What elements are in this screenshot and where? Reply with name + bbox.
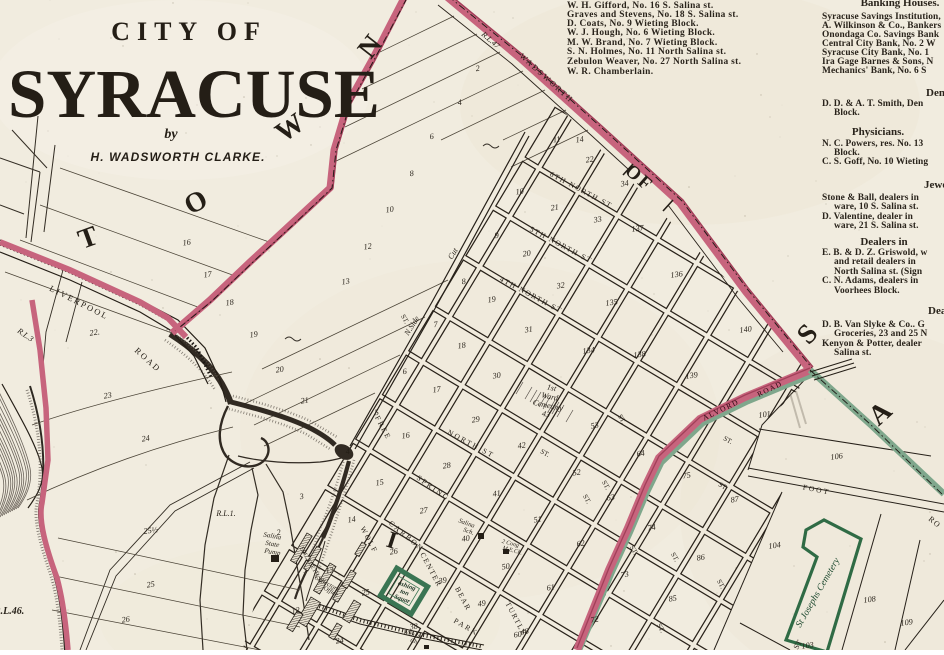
svg-text:85: 85 <box>668 593 677 603</box>
svg-text:108: 108 <box>863 594 876 605</box>
svg-text:19: 19 <box>249 329 258 339</box>
svg-text:Dealers in: Dealers in <box>928 305 944 317</box>
svg-text:13: 13 <box>341 276 350 286</box>
svg-text:Zebulon Weaver, No. 27 North S: Zebulon Weaver, No. 27 North Salina st. <box>567 57 741 67</box>
svg-text:25: 25 <box>146 579 155 589</box>
svg-text:Dealers in: Dealers in <box>860 236 907 248</box>
svg-text:29: 29 <box>471 414 480 424</box>
svg-text:22.: 22. <box>89 327 100 337</box>
svg-text:52: 52 <box>572 467 581 477</box>
svg-text:S. N. Holmes, No. 11 North Sal: S. N. Holmes, No. 11 North Salina st. <box>567 47 726 57</box>
svg-text:136: 136 <box>670 269 684 280</box>
svg-text:19: 19 <box>487 294 496 304</box>
svg-text:CITY OF: CITY OF <box>111 17 267 46</box>
svg-text:38: 38 <box>408 621 418 631</box>
svg-text:C. S. Goff, No. 10 Wieting: C. S. Goff, No. 10 Wieting <box>822 157 928 167</box>
svg-text:104: 104 <box>768 540 781 551</box>
svg-text:39: 39 <box>437 575 447 585</box>
svg-text:Dentists.: Dentists. <box>926 87 944 99</box>
svg-text:Block.: Block. <box>834 108 860 118</box>
svg-text:32: 32 <box>555 280 565 290</box>
svg-text:10: 10 <box>385 204 394 214</box>
svg-text:Voorhees Block.: Voorhees Block. <box>834 286 900 296</box>
svg-text:ware, 21 S. Salina st.: ware, 21 S. Salina st. <box>834 221 919 231</box>
svg-text:75: 75 <box>682 470 691 480</box>
svg-text:139: 139 <box>685 370 698 381</box>
svg-text:Salina st.: Salina st. <box>834 348 871 358</box>
svg-text:21: 21 <box>300 395 309 405</box>
svg-text:24: 24 <box>141 433 150 443</box>
svg-text:101: 101 <box>758 409 771 420</box>
svg-text:137: 137 <box>631 223 645 234</box>
svg-text:135: 135 <box>605 297 618 308</box>
svg-text:138: 138 <box>633 349 646 360</box>
svg-text:134: 134 <box>582 345 595 356</box>
svg-text:14: 14 <box>575 134 584 144</box>
svg-text:28: 28 <box>442 460 451 470</box>
svg-text:106: 106 <box>830 451 844 462</box>
svg-text:62: 62 <box>576 538 585 548</box>
svg-text:64: 64 <box>636 448 645 458</box>
svg-text:21: 21 <box>550 202 559 212</box>
svg-text:R.L.1.: R.L.1. <box>215 509 235 518</box>
svg-text:10: 10 <box>515 186 524 196</box>
svg-text:14: 14 <box>347 514 356 524</box>
svg-text:20: 20 <box>522 248 531 258</box>
svg-text:63: 63 <box>606 492 615 502</box>
svg-text:30: 30 <box>491 370 501 380</box>
svg-text:72: 72 <box>590 614 599 624</box>
svg-text:25: 25 <box>361 587 370 597</box>
svg-text:73: 73 <box>620 569 629 579</box>
svg-text:33: 33 <box>592 214 602 224</box>
svg-text:11: 11 <box>552 135 561 145</box>
svg-text:Banking Houses.: Banking Houses. <box>861 0 940 9</box>
svg-text:20: 20 <box>275 364 284 374</box>
svg-text:18: 18 <box>457 340 466 350</box>
svg-text:H. WADSWORTH CLARKE.: H. WADSWORTH CLARKE. <box>90 150 265 164</box>
svg-text:W. J. Hough, No. 6 Wieting Blo: W. J. Hough, No. 6 Wieting Block. <box>567 28 715 38</box>
svg-text:53: 53 <box>590 420 599 430</box>
svg-text:109: 109 <box>900 617 913 628</box>
svg-text:60: 60 <box>513 629 522 639</box>
svg-text:12: 12 <box>363 241 372 251</box>
svg-text:13: 13 <box>325 565 334 575</box>
svg-text:49: 49 <box>477 598 486 608</box>
svg-text:15: 15 <box>375 477 384 487</box>
svg-text:and retail dealers in: and retail dealers in <box>834 257 917 267</box>
svg-text:50: 50 <box>501 561 510 571</box>
svg-text:C. N. Adams, dealers in: C. N. Adams, dealers in <box>822 276 919 286</box>
svg-text:18: 18 <box>225 297 234 307</box>
svg-text:103: 103 <box>801 640 814 650</box>
svg-text:51: 51 <box>533 514 542 524</box>
svg-text:22: 22 <box>585 154 594 164</box>
svg-text:23: 23 <box>103 390 112 400</box>
svg-text:Physicians.: Physicians. <box>852 126 905 138</box>
svg-text:SYRACUSE: SYRACUSE <box>8 56 380 132</box>
svg-text:ware, 10 S. Salina st.: ware, 10 S. Salina st. <box>834 202 919 212</box>
svg-text:74: 74 <box>647 522 656 532</box>
svg-text:40: 40 <box>461 533 470 543</box>
svg-text:140: 140 <box>739 324 752 335</box>
svg-text:W. R. Chamberlain.: W. R. Chamberlain. <box>567 67 653 77</box>
svg-text:R.L.46.: R.L.46. <box>0 606 24 617</box>
svg-text:31: 31 <box>523 324 533 334</box>
svg-text:61: 61 <box>546 582 555 592</box>
svg-text:12: 12 <box>291 605 300 615</box>
svg-text:24: 24 <box>335 635 344 645</box>
svg-text:42: 42 <box>517 440 526 450</box>
svg-text:Mechanics' Bank, No. 6 S: Mechanics' Bank, No. 6 S <box>822 66 927 76</box>
svg-text:by: by <box>164 127 178 142</box>
svg-text:Groceries, 23 and 25 N: Groceries, 23 and 25 N <box>834 329 928 339</box>
svg-text:41: 41 <box>492 488 501 498</box>
svg-text:Jewelers.: Jewelers. <box>924 179 944 191</box>
